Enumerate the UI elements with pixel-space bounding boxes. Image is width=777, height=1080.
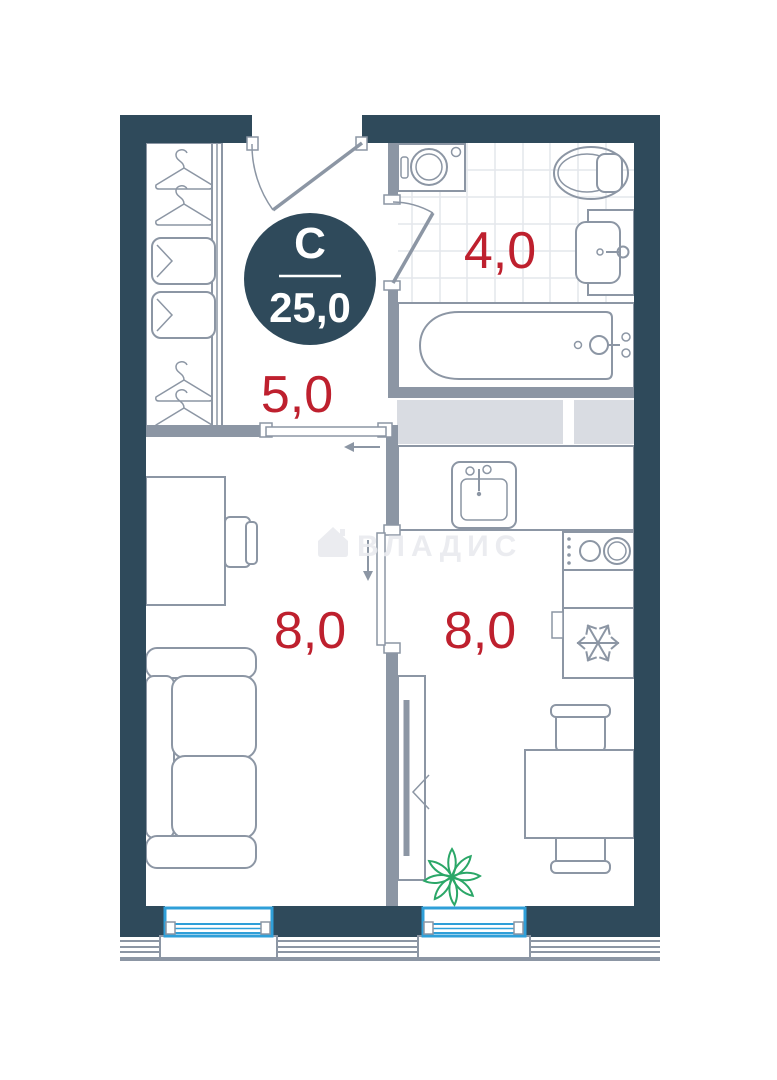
living-kitchen-wall xyxy=(386,645,398,906)
window xyxy=(423,908,525,936)
floor-plan: ВЛАДИС 4,0 5,0 8,0 8,0 С 25,0 xyxy=(0,0,777,1080)
dining-table-icon xyxy=(525,705,634,873)
kitchen-area-label: 8,0 xyxy=(444,602,516,660)
living-room-area-label: 8,0 xyxy=(274,602,346,660)
window xyxy=(165,908,272,936)
sofa-icon xyxy=(146,648,256,868)
floor-plan-canvas: ВЛАДИС 4,0 5,0 8,0 8,0 С 25,0 xyxy=(0,0,777,1080)
apartment-type-label: С xyxy=(294,219,326,268)
toilet-icon xyxy=(554,147,628,199)
hallway-area-label: 5,0 xyxy=(261,366,333,424)
sliding-door-hallway-living xyxy=(260,423,392,452)
apartment-total-area-label: 25,0 xyxy=(269,284,351,331)
chair-back xyxy=(551,861,610,873)
tall-cabinet xyxy=(398,676,429,880)
washing-machine-icon xyxy=(398,144,465,191)
chair-back xyxy=(551,705,610,717)
bathroom-wall xyxy=(388,283,398,398)
plant-icon xyxy=(424,849,480,905)
watermark-house-icon xyxy=(318,527,348,557)
watermark-text: ВЛАДИС xyxy=(357,530,522,563)
apartment-badge: С 25,0 xyxy=(244,213,376,345)
watermark: ВЛАДИС xyxy=(318,527,522,563)
hallway-living-wall xyxy=(146,425,268,437)
wardrobe xyxy=(146,143,222,429)
bathroom-area-label: 4,0 xyxy=(464,222,536,280)
stove-icon xyxy=(563,532,634,570)
kitchen-upper-cabinet xyxy=(574,400,634,444)
living-kitchen-wall xyxy=(386,425,398,533)
bathtub-icon xyxy=(398,303,634,388)
kitchen-upper-cabinet xyxy=(397,400,563,444)
bathroom-kitchen-wall xyxy=(388,388,634,398)
kitchen-base-cabinet xyxy=(563,570,634,608)
bathroom-sink-icon xyxy=(576,210,634,295)
bathroom-wall xyxy=(388,143,398,202)
living-room-furniture xyxy=(146,477,257,868)
window-sill xyxy=(160,936,277,958)
bathroom-door xyxy=(384,195,433,290)
entrance-door xyxy=(247,137,367,210)
facade-edge xyxy=(120,957,660,961)
window-sill xyxy=(418,936,530,958)
desk-icon xyxy=(146,477,257,605)
fridge-icon xyxy=(552,608,634,678)
